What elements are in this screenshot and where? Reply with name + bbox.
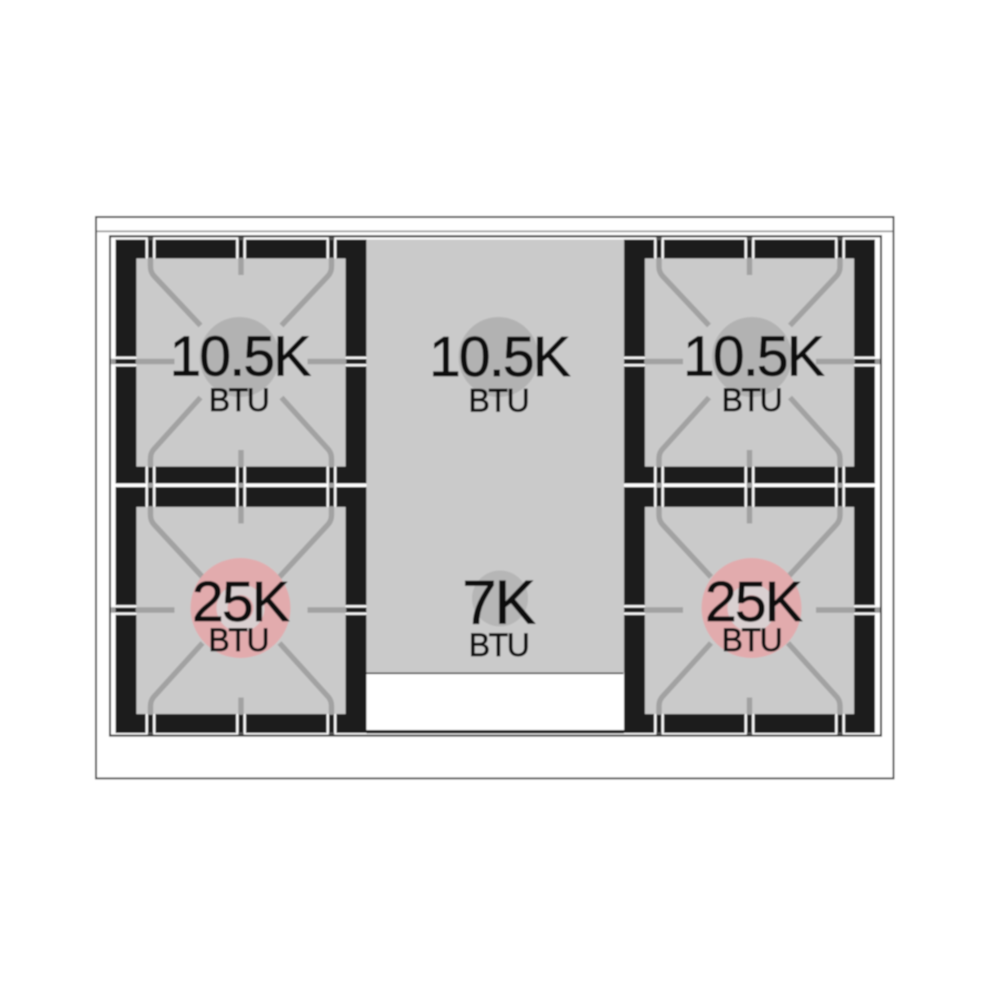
svg-text:10.5K: 10.5K [429,325,571,389]
svg-text:10.5K: 10.5K [170,325,312,389]
svg-text:BTU: BTU [469,627,529,663]
svg-text:BTU: BTU [722,382,782,418]
svg-text:BTU: BTU [208,622,268,658]
svg-text:BTU: BTU [722,622,782,658]
svg-text:BTU: BTU [209,382,269,418]
svg-text:BTU: BTU [468,383,528,419]
svg-text:10.5K: 10.5K [683,325,825,389]
